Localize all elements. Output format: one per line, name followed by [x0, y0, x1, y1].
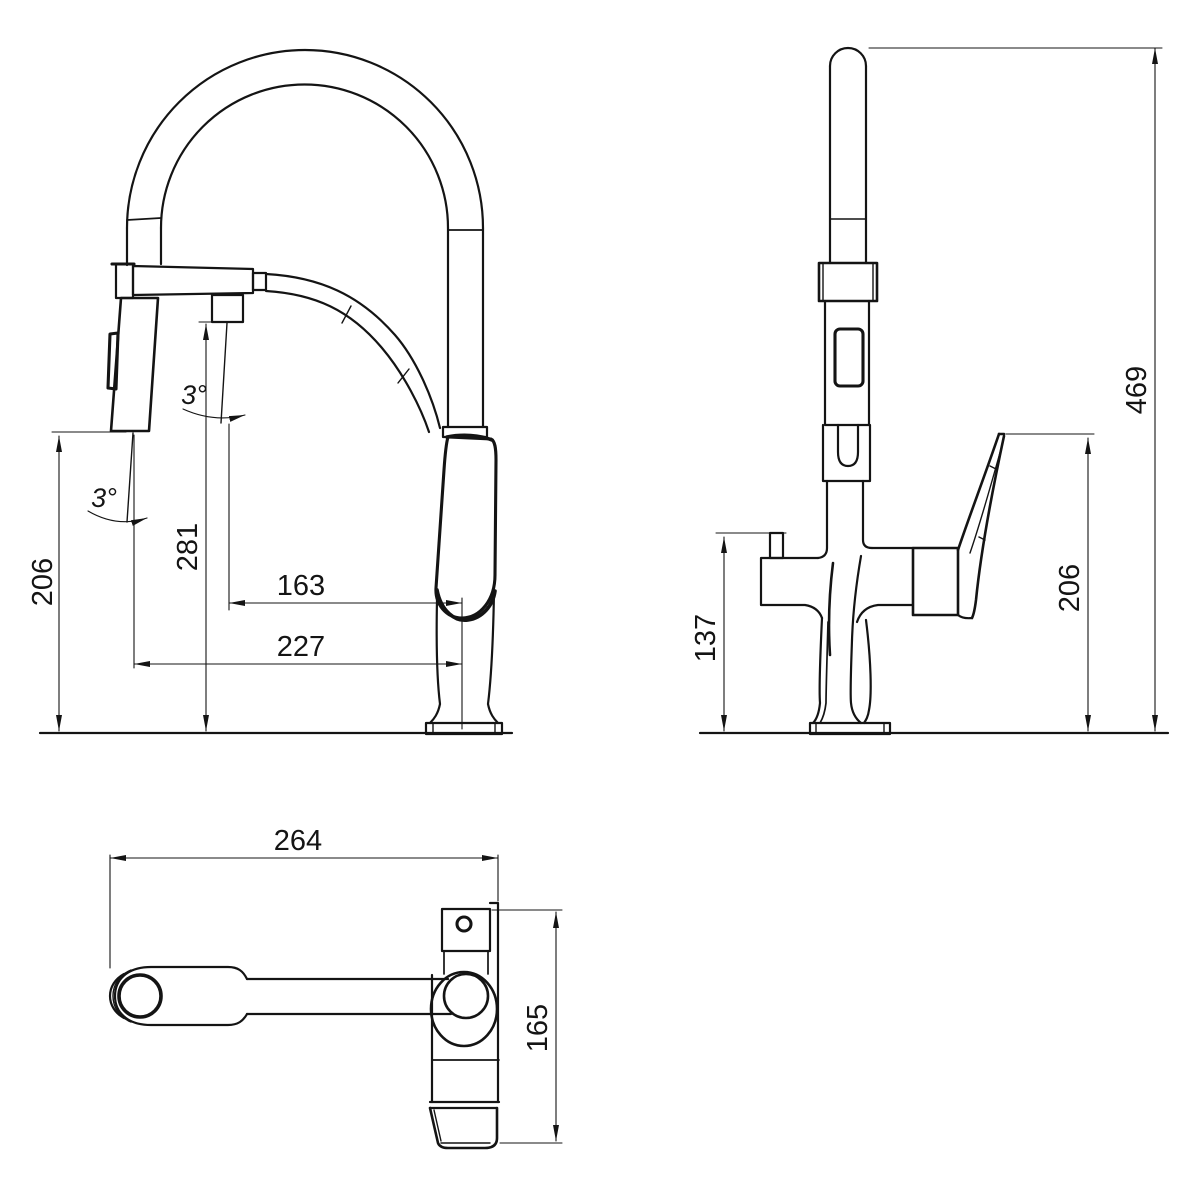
- dimension-total-height: 469: [869, 48, 1162, 731]
- gooseneck-right-leg: [448, 228, 483, 427]
- spout-tube: [247, 979, 451, 1014]
- tube-elbow: [444, 974, 488, 1018]
- sprayer-outlet-u: [838, 425, 858, 466]
- bracket-hole: [457, 917, 471, 931]
- front-view: 206 281 3° 3° 163: [27, 50, 512, 734]
- collar-inner-lines: [823, 263, 873, 301]
- handle-lever-bottom: [958, 615, 972, 618]
- side-outlet-arm: [761, 558, 822, 618]
- spray-face-ring: [119, 975, 161, 1017]
- pipe: [830, 66, 866, 263]
- body-handle-shell: [436, 437, 496, 618]
- pipe-cap: [830, 48, 866, 66]
- dimension-outlet-height: 137: [690, 533, 786, 731]
- sprayer-button: [835, 329, 863, 386]
- dim-label-469: 469: [1121, 366, 1153, 414]
- dim-label-137: 137: [690, 614, 722, 662]
- holder-hose-nub: [253, 273, 266, 290]
- gooseneck-inner-arc: [161, 84, 448, 228]
- dim-label-206-front: 206: [27, 558, 59, 606]
- angle-callout-spray: 3°: [88, 433, 147, 668]
- spout-stub: [212, 295, 243, 322]
- dim-label-281: 281: [172, 523, 204, 571]
- angle-axis-line: [127, 433, 133, 522]
- dimension-spout-reach: 163: [229, 424, 462, 729]
- spray-head-slot: [108, 333, 118, 389]
- side-outlet-stub: [770, 533, 783, 558]
- dim-label-206-side: 206: [1054, 564, 1086, 612]
- body-bottom-cap-inner: [434, 1110, 490, 1143]
- holder-bar: [133, 266, 253, 295]
- dim-label-227: 227: [277, 631, 325, 663]
- angle-label-spray: 3°: [91, 483, 117, 513]
- handle-mount-block: [913, 548, 958, 615]
- hose-upper-edge: [266, 274, 440, 428]
- angle-axis-line: [221, 323, 227, 423]
- column-back-curve: [864, 620, 871, 723]
- angle-label-spout: 3°: [181, 380, 207, 410]
- technical-drawing: 206 281 3° 3° 163: [0, 0, 1200, 1200]
- column-upper: [818, 481, 872, 558]
- handle-dome: [431, 972, 497, 1046]
- holder-left-cap: [116, 264, 133, 298]
- angle-arc: [183, 409, 245, 418]
- gooseneck-outer-arc: [127, 50, 483, 228]
- dim-label-163: 163: [277, 570, 325, 602]
- right-arm: [857, 548, 913, 622]
- dimension-spray-height: 206: [27, 432, 126, 731]
- channel-curve-left: [829, 563, 833, 655]
- dimension-length: 264: [110, 825, 498, 968]
- column-lower-left: [813, 618, 822, 723]
- collar: [819, 263, 877, 301]
- dimension-handle-height: 206: [1006, 434, 1094, 731]
- body-cap-lip: [430, 1102, 499, 1108]
- bracket-lower: [444, 951, 488, 974]
- channel-curve-right: [852, 556, 861, 640]
- drawing-page: 206 281 3° 3° 163: [0, 0, 1200, 1200]
- gooseneck-left-leg: [127, 228, 161, 265]
- side-view: 469 206 137: [690, 48, 1168, 734]
- angle-callout-spout: 3°: [181, 323, 245, 423]
- body-column: [430, 592, 498, 723]
- body-bottom-cap: [430, 1108, 497, 1148]
- gooseneck-left-joint: [127, 218, 161, 220]
- dimension-spray-reach: 227: [134, 631, 462, 664]
- dimension-depth: 165: [492, 910, 562, 1143]
- dim-label-264: 264: [274, 825, 322, 857]
- sprayer-lower-section: [823, 425, 870, 481]
- top-view: 264 165: [110, 825, 562, 1148]
- dim-label-165: 165: [522, 1004, 554, 1052]
- column-lower-right: [851, 640, 861, 723]
